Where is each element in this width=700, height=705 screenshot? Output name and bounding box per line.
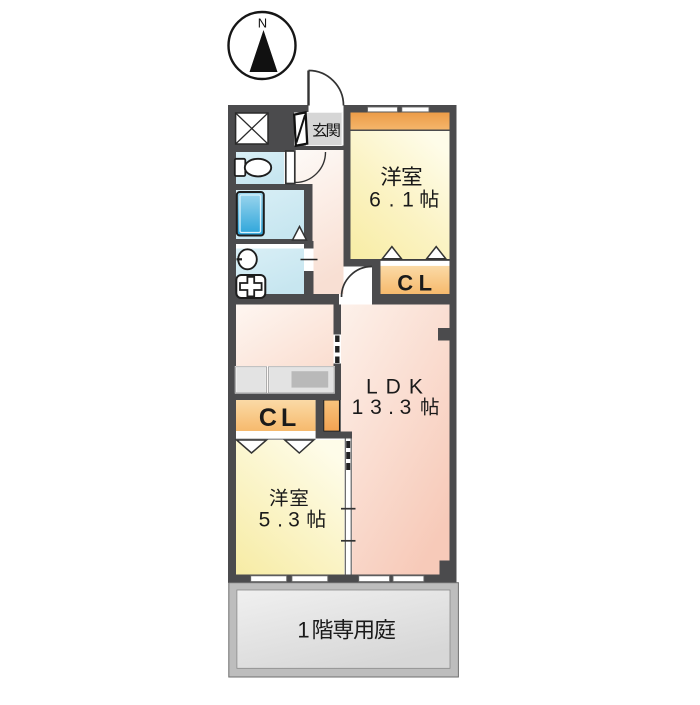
- svg-text:3: 3: [370, 396, 382, 419]
- svg-text:.: .: [388, 396, 394, 419]
- svg-text:3: 3: [400, 396, 412, 419]
- svg-text:1: 1: [402, 189, 414, 212]
- svg-text:.: .: [389, 189, 395, 212]
- svg-text:CL: CL: [259, 404, 300, 432]
- svg-text:1: 1: [352, 396, 364, 419]
- svg-text:.: .: [277, 509, 283, 532]
- svg-text:3: 3: [288, 509, 300, 532]
- svg-text:5: 5: [259, 509, 271, 532]
- svg-text:6: 6: [369, 189, 381, 212]
- svg-text:CL: CL: [397, 270, 437, 295]
- svg-text:1: 1: [297, 618, 309, 643]
- svg-text:N: N: [258, 16, 267, 31]
